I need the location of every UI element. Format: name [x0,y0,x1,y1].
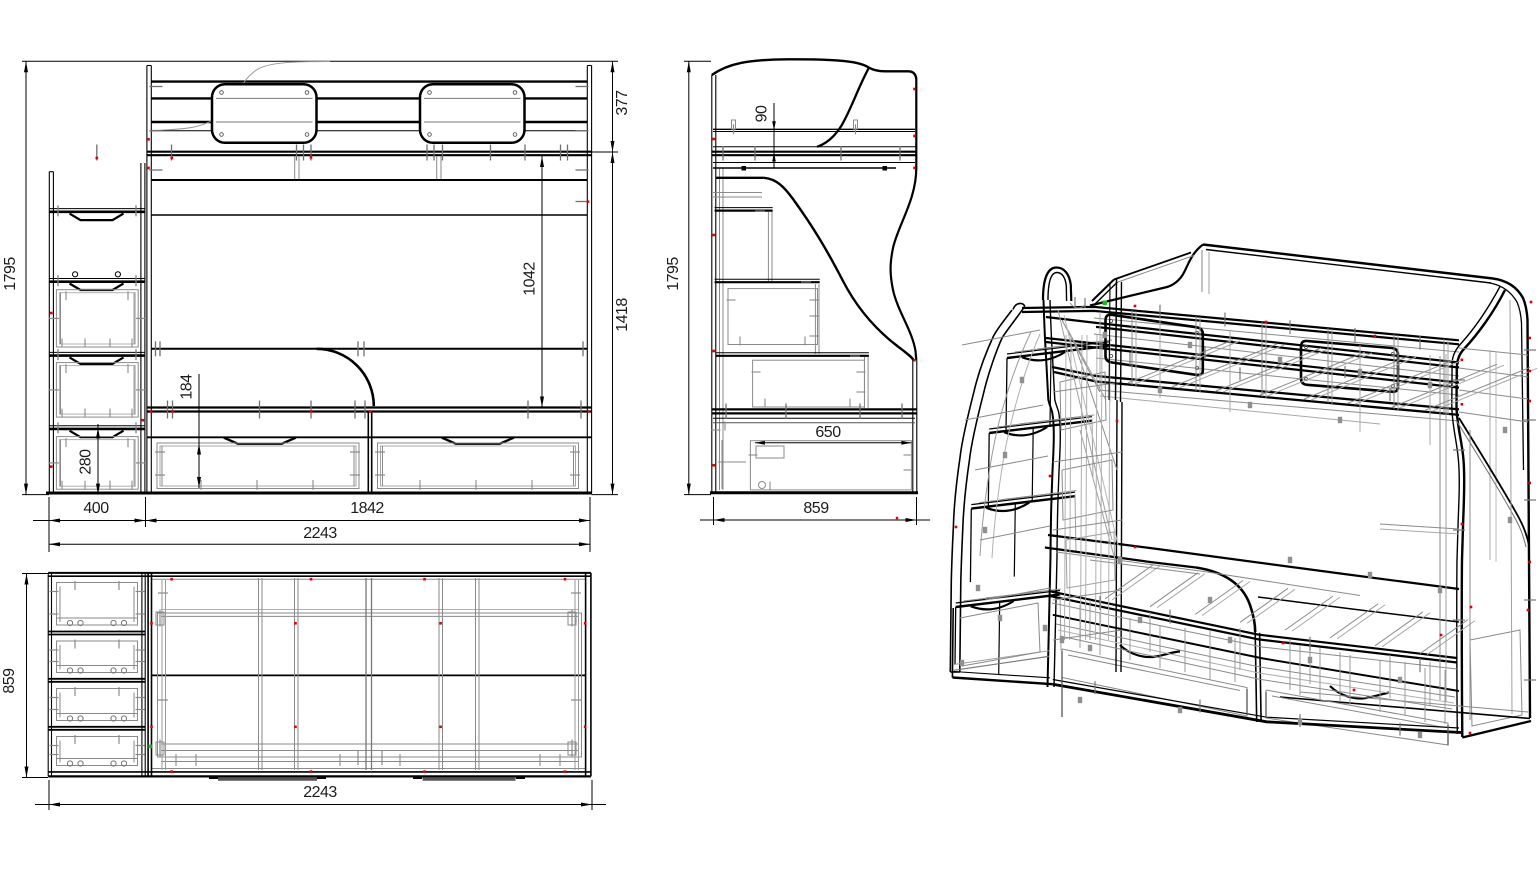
svg-text:859: 859 [803,500,829,517]
svg-text:650: 650 [815,424,841,441]
svg-text:377: 377 [614,90,631,116]
svg-text:184: 184 [179,374,196,400]
svg-text:1042: 1042 [522,262,539,296]
svg-text:859: 859 [1,668,18,694]
svg-text:1842: 1842 [350,500,384,517]
svg-text:2243: 2243 [303,525,337,542]
svg-text:2243: 2243 [303,784,337,801]
svg-text:1795: 1795 [665,257,682,291]
svg-text:400: 400 [83,500,109,517]
svg-text:1418: 1418 [614,298,631,332]
svg-text:90: 90 [754,105,771,122]
svg-text:280: 280 [78,449,95,475]
svg-text:1795: 1795 [2,257,19,291]
